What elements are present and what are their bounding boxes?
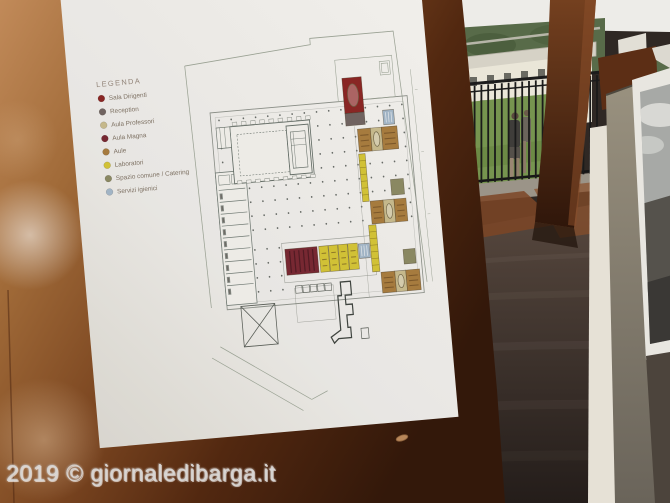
poster: LEGENDA Sala DirigentiReceptionAula Prof… bbox=[58, 0, 458, 448]
scene-canvas: LEGENDA Sala DirigentiReceptionAula Prof… bbox=[0, 0, 670, 503]
paper-shading bbox=[58, 0, 458, 448]
photo-scene: LEGENDA Sala DirigentiReceptionAula Prof… bbox=[0, 0, 670, 503]
